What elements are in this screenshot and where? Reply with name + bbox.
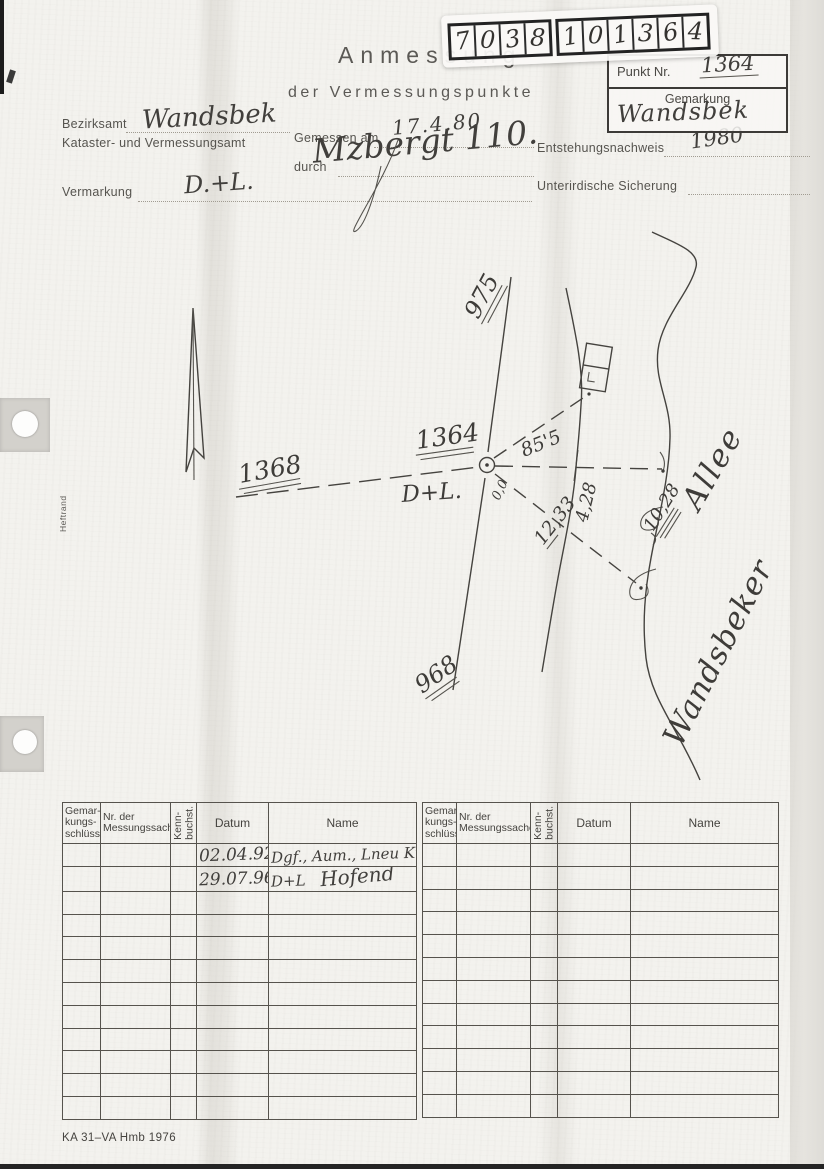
table-header-row: Gemar- kungs- schlüssel Nr. der Messungs… [63,803,417,844]
empty-cell [423,1003,457,1026]
empty-cell [171,1028,197,1051]
digit-group-prefix: 7 0 3 8 [447,19,552,60]
entry-datum: 29.07.96. [197,866,269,891]
empty-cell [197,960,269,983]
empty-cell [457,912,531,935]
table-row [63,891,417,914]
building-symbol [580,343,613,392]
empty-cell [457,889,531,912]
bezirksamt-value: Wandsbek [141,99,277,136]
empty-cell [631,889,779,912]
vermarkung-value: D.+L. [183,167,254,200]
empty-cell [631,957,779,980]
col-kennbuchstabe: Kenn- buchst. [171,803,197,844]
dotted-rule [126,131,290,133]
bezirksamt-label: Bezirksamt [62,117,127,131]
empty-cell [171,960,197,983]
svg-text:Wandsbeker: Wandsbeker [656,553,781,752]
table-row [63,1005,417,1028]
street-curve-line [644,232,700,780]
empty-cell [423,866,457,889]
digit-cell: 0 [583,19,609,51]
digit-cell: 3 [633,17,659,49]
form-subtitle: der Vermessungspunkte [288,84,534,102]
empty-cell [197,891,269,914]
kataster-label: Kataster- und Vermessungsamt [62,136,246,150]
empty-cell [171,914,197,937]
empty-cell [423,957,457,980]
empty-cell [558,866,631,889]
empty-cell [171,1051,197,1074]
col-messungssache: Nr. der Messungssache [457,803,531,844]
digit-cell: 8 [525,22,549,54]
table-row [63,982,417,1005]
digit: 8 [530,24,546,52]
digit: 0 [587,21,603,49]
empty-cell [457,1049,531,1072]
empty-cell [171,937,197,960]
empty-cell [457,957,531,980]
col-gemarkungsschluessel: Gemar- kungs- schlüssel [423,803,457,844]
empty-cell [101,1051,171,1074]
empty-cell [197,937,269,960]
col-name: Name [269,803,417,844]
empty-cell [457,844,531,867]
empty-cell [171,866,197,891]
empty-cell [631,912,779,935]
end-point-dot [661,469,664,472]
empty-cell [63,844,101,867]
valve-symbol [630,569,656,600]
empty-cell [631,1071,779,1094]
digit-cell: 4 [683,15,707,47]
measure-4-28: 4,28 [571,480,601,525]
col-gemarkungsschluessel: Gemar- kungs- schlüssel [63,803,101,844]
empty-cell [269,914,417,937]
empty-cell [101,1005,171,1028]
empty-cell [558,1094,631,1117]
empty-cell [558,889,631,912]
table-header-row: Gemar- kungs- schlüssel Nr. der Messungs… [423,803,779,844]
form-code: KA 31–VA Hmb 1976 [62,1132,176,1144]
empty-cell [558,1026,631,1049]
label-975: 975 [458,269,509,326]
table-row [423,1003,779,1026]
empty-cell [531,866,558,889]
empty-cell [457,866,531,889]
empty-cell [531,912,558,935]
table-row [63,960,417,983]
empty-cell [531,1094,558,1117]
punch-hole [12,411,38,437]
digit: 1 [611,19,631,49]
entry-name: Dgf., Aum., Lneu Kiö [269,844,417,867]
manhole-symbol [641,507,663,545]
empty-cell [197,1096,269,1119]
table-row [423,844,779,867]
empty-cell [631,1003,779,1026]
empty-cell [269,960,417,983]
table-row [423,980,779,1003]
digit: 0 [480,26,496,54]
svg-text:85'5: 85'5 [518,426,565,462]
svg-text:1368: 1368 [236,449,304,489]
svg-text:Allee: Allee [673,421,750,519]
digit-cell: 1 [608,18,634,50]
col-datum: Datum [558,803,631,844]
empty-cell [531,844,558,867]
empty-cell [63,982,101,1005]
empty-cell [558,1071,631,1094]
col-kennbuchstabe: Kenn- buchst. [531,803,558,844]
page-right-edge [790,0,824,1169]
empty-cell [197,914,269,937]
measure-85-5: 85'5 [518,426,565,462]
road-crossing-tick [574,450,578,481]
digit-group-number: 1 0 1 3 6 4 [555,12,710,55]
empty-cell [63,1096,101,1119]
empty-cell [101,891,171,914]
svg-text:12,33: 12,33 [530,493,581,549]
empty-cell [63,866,101,891]
empty-cell [423,912,457,935]
scan-edge-mark [0,0,4,94]
table-row [423,1094,779,1117]
empty-cell [101,844,171,867]
digit: 3 [637,19,653,47]
col-name: Name [631,803,779,844]
svg-text:968: 968 [409,650,463,699]
digit: 4 [687,17,703,45]
empty-cell [531,1049,558,1072]
empty-cell [558,844,631,867]
empty-cell [171,1096,197,1119]
ray-to-1368 [236,467,479,497]
empty-cell [269,891,417,914]
label-968: 968 [409,650,465,703]
valve-point-dot [639,586,642,589]
empty-cell [531,1003,558,1026]
empty-cell [457,935,531,958]
empty-cell [197,1028,269,1051]
empty-cell [423,889,457,912]
ray-to-building [494,396,586,458]
table-row [423,1071,779,1094]
dotted-rule [138,200,532,202]
street-name-wandsbeker: Wandsbeker [656,553,781,752]
empty-cell [197,1005,269,1028]
punkt-nr-row: Punkt Nr. 1364 [609,56,786,89]
empty-cell [531,957,558,980]
gemarkung-row: Gemarkung Wandsbek [609,89,786,131]
measure-12-33: 12,33 [530,493,581,549]
entry-datum: 02.04.92 [197,844,269,867]
empty-cell [101,1074,171,1097]
empty-cell [423,1094,457,1117]
digit-cell: 7 [450,25,476,57]
empty-cell [423,1071,457,1094]
gemarkung-value: Wandsbek [617,96,750,129]
table-row [423,1026,779,1049]
empty-cell [269,1074,417,1097]
empty-cell [101,866,171,891]
empty-cell [197,1074,269,1097]
label-1364: 1364 [412,417,482,460]
measure-0-0: 0,0 [489,478,512,503]
traverse-line-upper [488,277,511,452]
empty-cell [63,1074,101,1097]
empty-cell [63,891,101,914]
empty-cell [457,1026,531,1049]
road-edge-line [542,288,582,672]
digit: 3 [503,24,523,54]
empty-cell [531,935,558,958]
empty-cell [171,1074,197,1097]
empty-cell [101,982,171,1005]
empty-cell [171,982,197,1005]
dotted-rule [688,193,810,195]
table-row [63,914,417,937]
table-row-entry: 02.04.92 Dgf., Aum., Lneu Kiö [63,844,417,867]
empty-cell [269,937,417,960]
empty-cell [423,1049,457,1072]
empty-cell [558,957,631,980]
scanned-form-page: Heftrand Anmessung der Vermessungspunkte… [0,0,824,1169]
empty-cell [101,960,171,983]
empty-cell [558,1003,631,1026]
heftrand-label: Heftrand [58,462,68,532]
empty-cell [423,980,457,1003]
table-row [423,912,779,935]
ray-to-street [495,466,662,469]
unterirdische-sicherung-label: Unterirdische Sicherung [537,179,677,193]
ray-to-valve [495,474,636,583]
empty-cell [269,1028,417,1051]
empty-cell [63,937,101,960]
table-row [63,1096,417,1119]
table-row-entry: 29.07.96. D+LHofend [63,866,417,891]
measure-10-28: 10,28 [638,480,691,541]
label-marker-type: D+L. [400,478,463,508]
empty-cell [558,980,631,1003]
empty-cell [423,1026,457,1049]
digit: 6 [661,17,681,47]
punkt-nr-label: Punkt Nr. [617,64,670,79]
empty-cell [63,1051,101,1074]
table-row [423,866,779,889]
hole-punch-reinforcement [0,398,50,452]
empty-cell [631,980,779,1003]
digit-cell: 1 [558,20,584,52]
table-row [63,937,417,960]
empty-cell [197,1051,269,1074]
empty-cell [558,935,631,958]
traverse-line-lower [453,478,485,690]
digit-cell: 6 [658,16,684,48]
empty-cell [269,1096,417,1119]
punch-hole [13,730,37,754]
empty-cell [269,1051,417,1074]
svg-text:975: 975 [459,269,505,323]
label-1368: 1368 [234,449,305,494]
hole-punch-reinforcement [0,716,44,772]
end-tick-hook [660,452,664,471]
empty-cell [269,1005,417,1028]
empty-cell [63,1005,101,1028]
empty-cell [101,1028,171,1051]
empty-cell [63,914,101,937]
empty-cell [171,891,197,914]
empty-cell [631,1094,779,1117]
north-arrow-icon [186,308,204,472]
empty-cell [423,935,457,958]
empty-cell [457,1094,531,1117]
street-name-allee: Allee [673,421,750,519]
svg-text:10,28: 10,28 [639,480,684,535]
svg-text:1364: 1364 [414,417,481,455]
empty-cell [631,844,779,867]
dotted-rule [664,155,810,157]
empty-cell [423,844,457,867]
empty-cell [531,980,558,1003]
col-datum: Datum [197,803,269,844]
digit: 7 [453,26,473,56]
measurement-log-table-left: Gemar- kungs- schlüssel Nr. der Messungs… [62,802,417,1120]
empty-cell [197,982,269,1005]
entry-name: D+LHofend [269,866,417,891]
empty-cell [531,889,558,912]
scan-bottom-edge [0,1164,824,1169]
dotted-rule [338,175,534,177]
empty-cell [457,1071,531,1094]
empty-cell [457,980,531,1003]
durch-signature: Mzbergt 110. [311,112,540,171]
empty-cell [63,960,101,983]
building-corner-dot [587,392,590,395]
digit-cell: 0 [475,24,501,56]
table-row [63,1051,417,1074]
measurement-log-table-right: Gemar- kungs- schlüssel Nr. der Messungs… [422,802,779,1118]
col-messungssache: Nr. der Messungssache [101,803,171,844]
north-arrow-shaft [193,308,194,480]
empty-cell [63,1028,101,1051]
empty-cell [558,1049,631,1072]
table-row [63,1074,417,1097]
empty-cell [101,914,171,937]
empty-cell [631,866,779,889]
entstehungsnachweis-label: Entstehungsnachweis [537,141,664,155]
table-row [63,1028,417,1051]
digit-cell: 3 [500,23,526,55]
svg-text:4,28: 4,28 [571,480,601,525]
empty-cell [631,1026,779,1049]
table-row [423,889,779,912]
empty-cell [101,1096,171,1119]
empty-cell [457,1003,531,1026]
empty-cell [171,1005,197,1028]
empty-cell [531,1071,558,1094]
survey-point-symbol [480,458,495,473]
table-row [423,1049,779,1072]
vermarkung-label: Vermarkung [62,185,132,199]
empty-cell [531,1026,558,1049]
svg-text:D+L.: D+L. [400,478,463,508]
table-row [423,957,779,980]
point-id-box: Punkt Nr. 1364 Gemarkung Wandsbek [607,54,788,133]
empty-cell [558,912,631,935]
empty-cell [269,982,417,1005]
table-row [423,935,779,958]
svg-text:0,0: 0,0 [489,478,512,503]
empty-cell [631,1049,779,1072]
survey-point-dot [485,463,489,467]
empty-cell [631,935,779,958]
scan-edge-mark [6,69,16,83]
digit: 1 [561,21,581,51]
empty-cell [101,937,171,960]
empty-cell [171,844,197,867]
